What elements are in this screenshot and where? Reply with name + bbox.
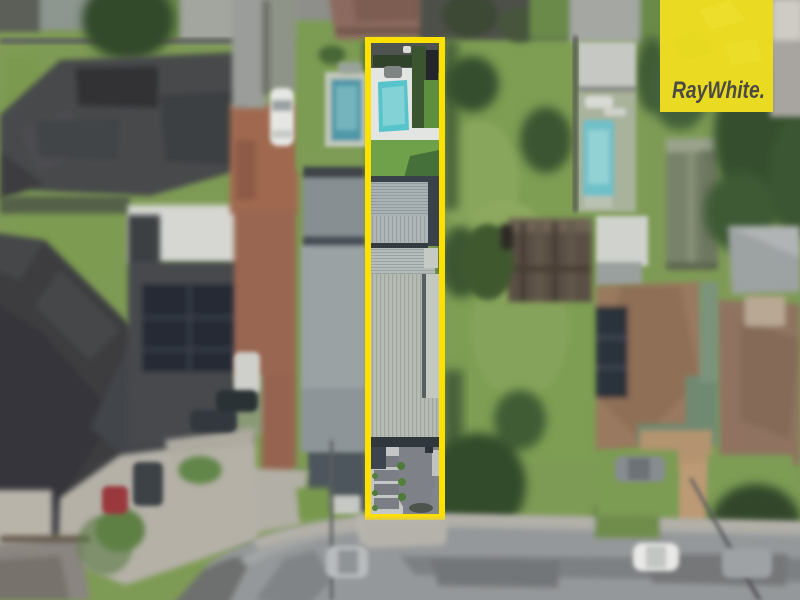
svg-text:RayWhite.: RayWhite. (672, 77, 765, 104)
